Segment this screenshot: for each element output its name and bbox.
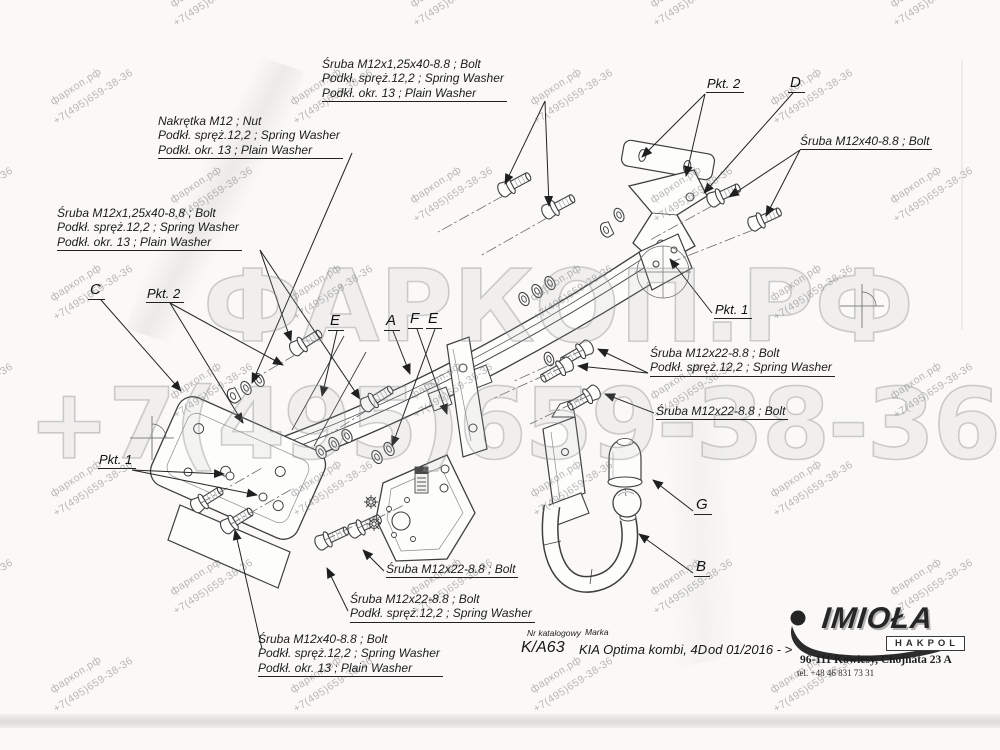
part-letter-g: G	[694, 496, 712, 515]
callout-line: Śruba M12x40-8.8 ; Bolt	[800, 134, 929, 148]
part-letter-f: F	[408, 310, 423, 329]
brand-label: Marka	[585, 627, 609, 637]
point-label-pkt1-right: Pkt. 1	[714, 302, 752, 319]
callout-line: Podkł. spręż.12,2 ; Spring Washer	[158, 128, 340, 142]
logo-subtitle: HAKPOL	[886, 636, 965, 651]
callout-line: Śruba M12x1,25x40-8.8 ; Bolt	[57, 206, 239, 220]
callout-bolt-m12x22-right-lower: Śruba M12x22-8.8 ; Bolt	[656, 404, 788, 420]
callout-line: Podkł. okr. 13 ; Plain Washer	[322, 86, 504, 100]
logo-title: IMIOŁA	[820, 602, 935, 636]
callout-line: Śruba M12x22-8.8 ; Bolt	[656, 404, 785, 418]
callout-bolt-m12x22-right-upper: Śruba M12x22-8.8 ; Bolt Podkł. spręż.12,…	[650, 346, 835, 377]
callout-bolt-m12x22-bottom-upper: Śruba M12x22-8.8 ; Bolt	[386, 562, 518, 578]
part-letter-e2: E	[426, 310, 442, 329]
callout-bolt-m12x125x40-top: Śruba M12x1,25x40-8.8 ; Bolt Podkł. sprę…	[322, 57, 507, 102]
callout-line: Nakrętka M12 ; Nut	[158, 114, 340, 128]
callout-bolt-m12x40-bottom: Śruba M12x40-8.8 ; Bolt Podkł. spręż.12,…	[258, 632, 443, 677]
part-letter-a: A	[384, 312, 400, 331]
brand-logo: IMIOŁA HAKPOL	[782, 598, 972, 678]
availability-date-value: od 01/2016 - >	[708, 642, 792, 657]
manufacturer-address: 96-111 Kowiesy, Chojnata 23 A	[800, 654, 952, 666]
scanned-diagram-page: Śruba M12x1,25x40-8.8 ; Bolt Podkł. sprę…	[0, 0, 1000, 750]
callout-line: Śruba M12x22-8.8 ; Bolt	[386, 562, 515, 576]
callout-nut-m12: Nakrętka M12 ; Nut Podkł. spręż.12,2 ; S…	[158, 114, 343, 159]
part-letter-c: C	[88, 281, 105, 300]
callout-bolt-m12x125x40-left: Śruba M12x1,25x40-8.8 ; Bolt Podkł. sprę…	[57, 206, 242, 251]
callout-line: Śruba M12x40-8.8 ; Bolt	[258, 632, 440, 646]
callout-line: Śruba M12x1,25x40-8.8 ; Bolt	[322, 57, 504, 71]
callout-line: Podkł. spręż.12,2 ; Spring Washer	[57, 220, 239, 234]
callout-line: Podkł. okr. 13 ; Plain Washer	[158, 143, 340, 157]
part-letter-b: B	[694, 558, 710, 577]
callout-line: Podkł. okr. 13 ; Plain Washer	[57, 235, 239, 249]
callout-bolt-m12x22-bottom-lower: Śruba M12x22-8.8 ; Bolt Podkł. spręż.12,…	[350, 592, 535, 623]
callout-line: Podkł. spręż.12,2 ; Spring Washer	[350, 606, 532, 620]
callout-line: Śruba M12x22-8.8 ; Bolt	[350, 592, 532, 606]
catalog-number-value: K/A63	[521, 639, 565, 657]
point-label-pkt2-right: Pkt. 2	[706, 76, 744, 93]
callout-bolt-m12x40-right: Śruba M12x40-8.8 ; Bolt	[800, 134, 932, 150]
part-letter-e: E	[328, 312, 344, 331]
part-letter-d: D	[788, 74, 805, 93]
point-label-pkt1-left: Pkt. 1	[98, 452, 136, 469]
callout-line: Śruba M12x22-8.8 ; Bolt	[650, 346, 832, 360]
callout-line: Podkł. spręż.12,2 ; Spring Washer	[650, 360, 832, 374]
vehicle-model-value: KIA Optima kombi, 4D	[579, 642, 707, 657]
manufacturer-phone: tel. +48 46 831 73 31	[797, 668, 874, 678]
catalog-number-label: Nr katalogowy	[527, 628, 581, 638]
callout-line: Podkł. spręż.12,2 ; Spring Washer	[322, 71, 504, 85]
point-label-pkt2-left: Pkt. 2	[146, 286, 184, 303]
callout-line: Podkł. spręż.12,2 ; Spring Washer	[258, 646, 440, 660]
callout-line: Podkł. okr. 13 ; Plain Washer	[258, 661, 440, 675]
